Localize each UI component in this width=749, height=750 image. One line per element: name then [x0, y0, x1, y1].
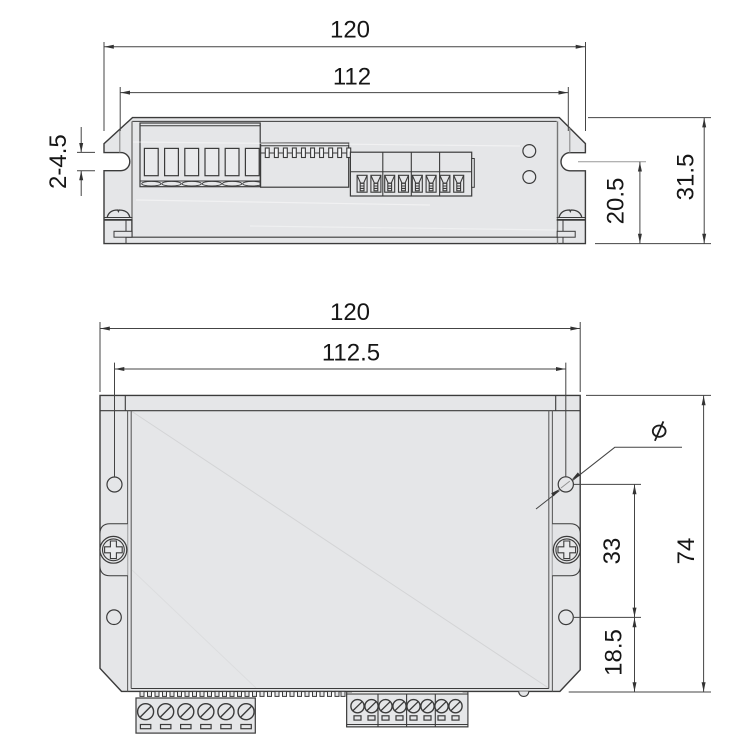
svg-text:74: 74 [673, 538, 700, 565]
svg-text:18.5: 18.5 [601, 629, 628, 676]
svg-text:112.5: 112.5 [322, 340, 380, 367]
svg-text:120: 120 [330, 299, 370, 326]
svg-text:2-4.5: 2-4.5 [45, 134, 72, 189]
svg-text:112: 112 [333, 63, 371, 90]
svg-text:31.5: 31.5 [673, 154, 700, 201]
svg-text:20.5: 20.5 [603, 178, 630, 225]
svg-text:33: 33 [599, 538, 626, 565]
svg-text:120: 120 [330, 17, 370, 44]
